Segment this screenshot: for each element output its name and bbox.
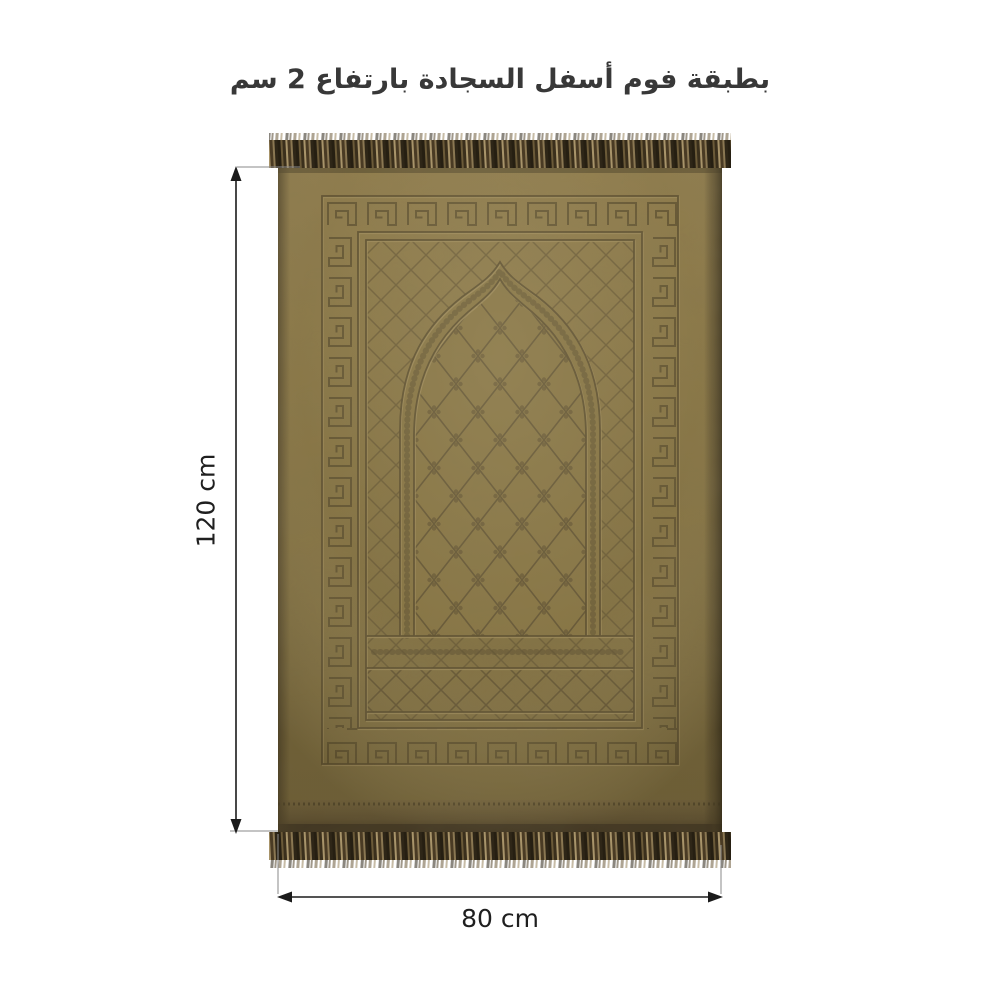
product-spec-image: بطبقة فوم أسفل السجادة بارتفاع 2 سم <box>0 0 1000 1000</box>
width-dimension-label: 80 cm <box>430 904 570 933</box>
extension-lines <box>230 167 721 894</box>
height-dimension-arrow <box>231 166 242 834</box>
width-dimension-arrow <box>277 892 723 903</box>
dimension-annotations <box>0 0 1000 1000</box>
height-dimension-label: 120 cm <box>192 441 221 561</box>
